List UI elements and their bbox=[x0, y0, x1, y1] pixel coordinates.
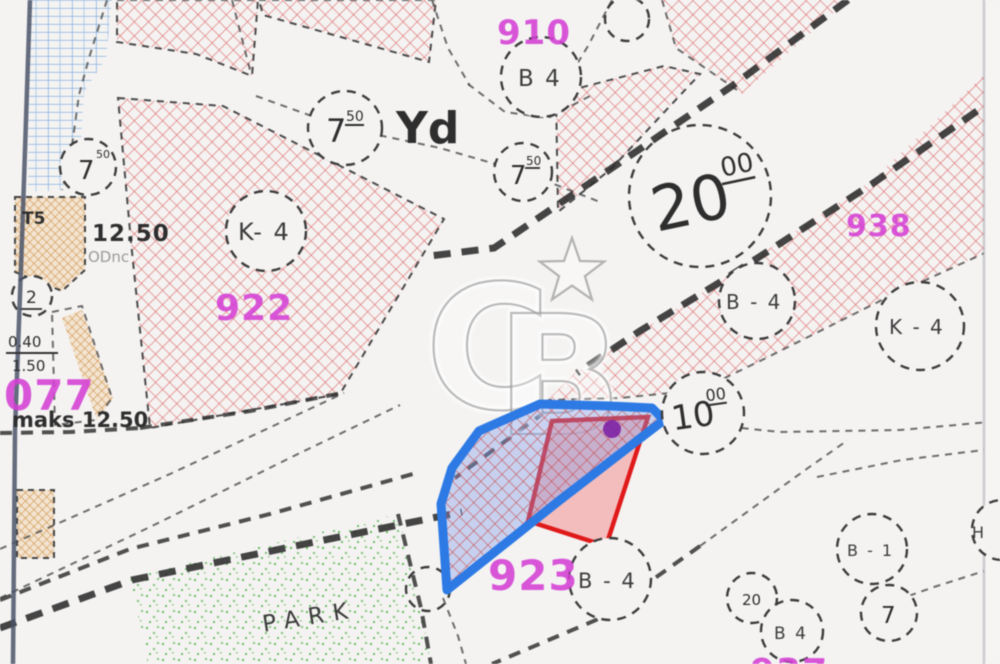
hatch-region-topleft bbox=[117, 0, 258, 76]
zone-label-922: K- 4 bbox=[238, 218, 291, 246]
zone-label-h: H bbox=[972, 523, 986, 542]
boundary-line bbox=[432, 0, 470, 86]
parcel-number-923: 923 bbox=[488, 551, 579, 600]
fraction-top-label: 0.40 bbox=[8, 333, 41, 351]
zone-label-k4-right: K - 4 bbox=[889, 315, 945, 339]
t5-label: T5 bbox=[22, 209, 45, 229]
parcel-number-922: 922 bbox=[215, 288, 293, 329]
map-right-margin bbox=[984, 0, 1000, 664]
road-label-yd: Yd bbox=[395, 103, 459, 154]
purple-dot-marker bbox=[603, 420, 621, 438]
zoning-map: C B C B ™ B 4 7 50 7 50 7 50 K- 4 2 bbox=[0, 0, 1000, 664]
zone-label-b1: B - 1 bbox=[847, 541, 894, 560]
circle-7-50-a-sup: 50 bbox=[346, 109, 364, 125]
circle-2-value: 2 bbox=[26, 288, 37, 308]
circle-7-50-left-sup: 50 bbox=[96, 148, 110, 161]
circle-20-small-value: 20 bbox=[742, 591, 761, 609]
map-frame-line bbox=[13, 0, 30, 664]
zone-label-b4-small: B 4 bbox=[774, 624, 808, 644]
parcel-number-938: 938 bbox=[846, 209, 912, 244]
boundary-line bbox=[443, 598, 466, 664]
parcel-number-bottom-cut: 937 bbox=[750, 652, 828, 664]
dim-sub-label: ODnc bbox=[88, 248, 129, 266]
zone-label-910: B 4 bbox=[518, 66, 562, 92]
circle-7-50-a-value: 7 bbox=[326, 112, 346, 150]
dashed-circle bbox=[605, 0, 649, 41]
boundary-line bbox=[700, 440, 848, 546]
zone-label-b4-right: B - 4 bbox=[726, 290, 782, 314]
boundary-line bbox=[817, 448, 1000, 477]
hatch-region-orange-small bbox=[17, 490, 54, 558]
circle-7-bottomright-value: 7 bbox=[881, 603, 896, 629]
fraction-bottom-label: 1.50 bbox=[12, 357, 45, 375]
zone-label-923: B - 4 bbox=[578, 569, 637, 593]
maks-label: maks 12.50 bbox=[12, 408, 148, 432]
dim-1250-label: 12.50 bbox=[92, 221, 170, 247]
circle-7-50-b-sup: 50 bbox=[526, 154, 541, 168]
parcel-number-910: 910 bbox=[497, 13, 571, 53]
hatch-region-topcenter bbox=[259, 0, 436, 62]
park-area bbox=[130, 514, 431, 664]
circle-7-50-b-value: 7 bbox=[510, 161, 527, 191]
circle-7-50-left-value: 7 bbox=[78, 156, 95, 186]
